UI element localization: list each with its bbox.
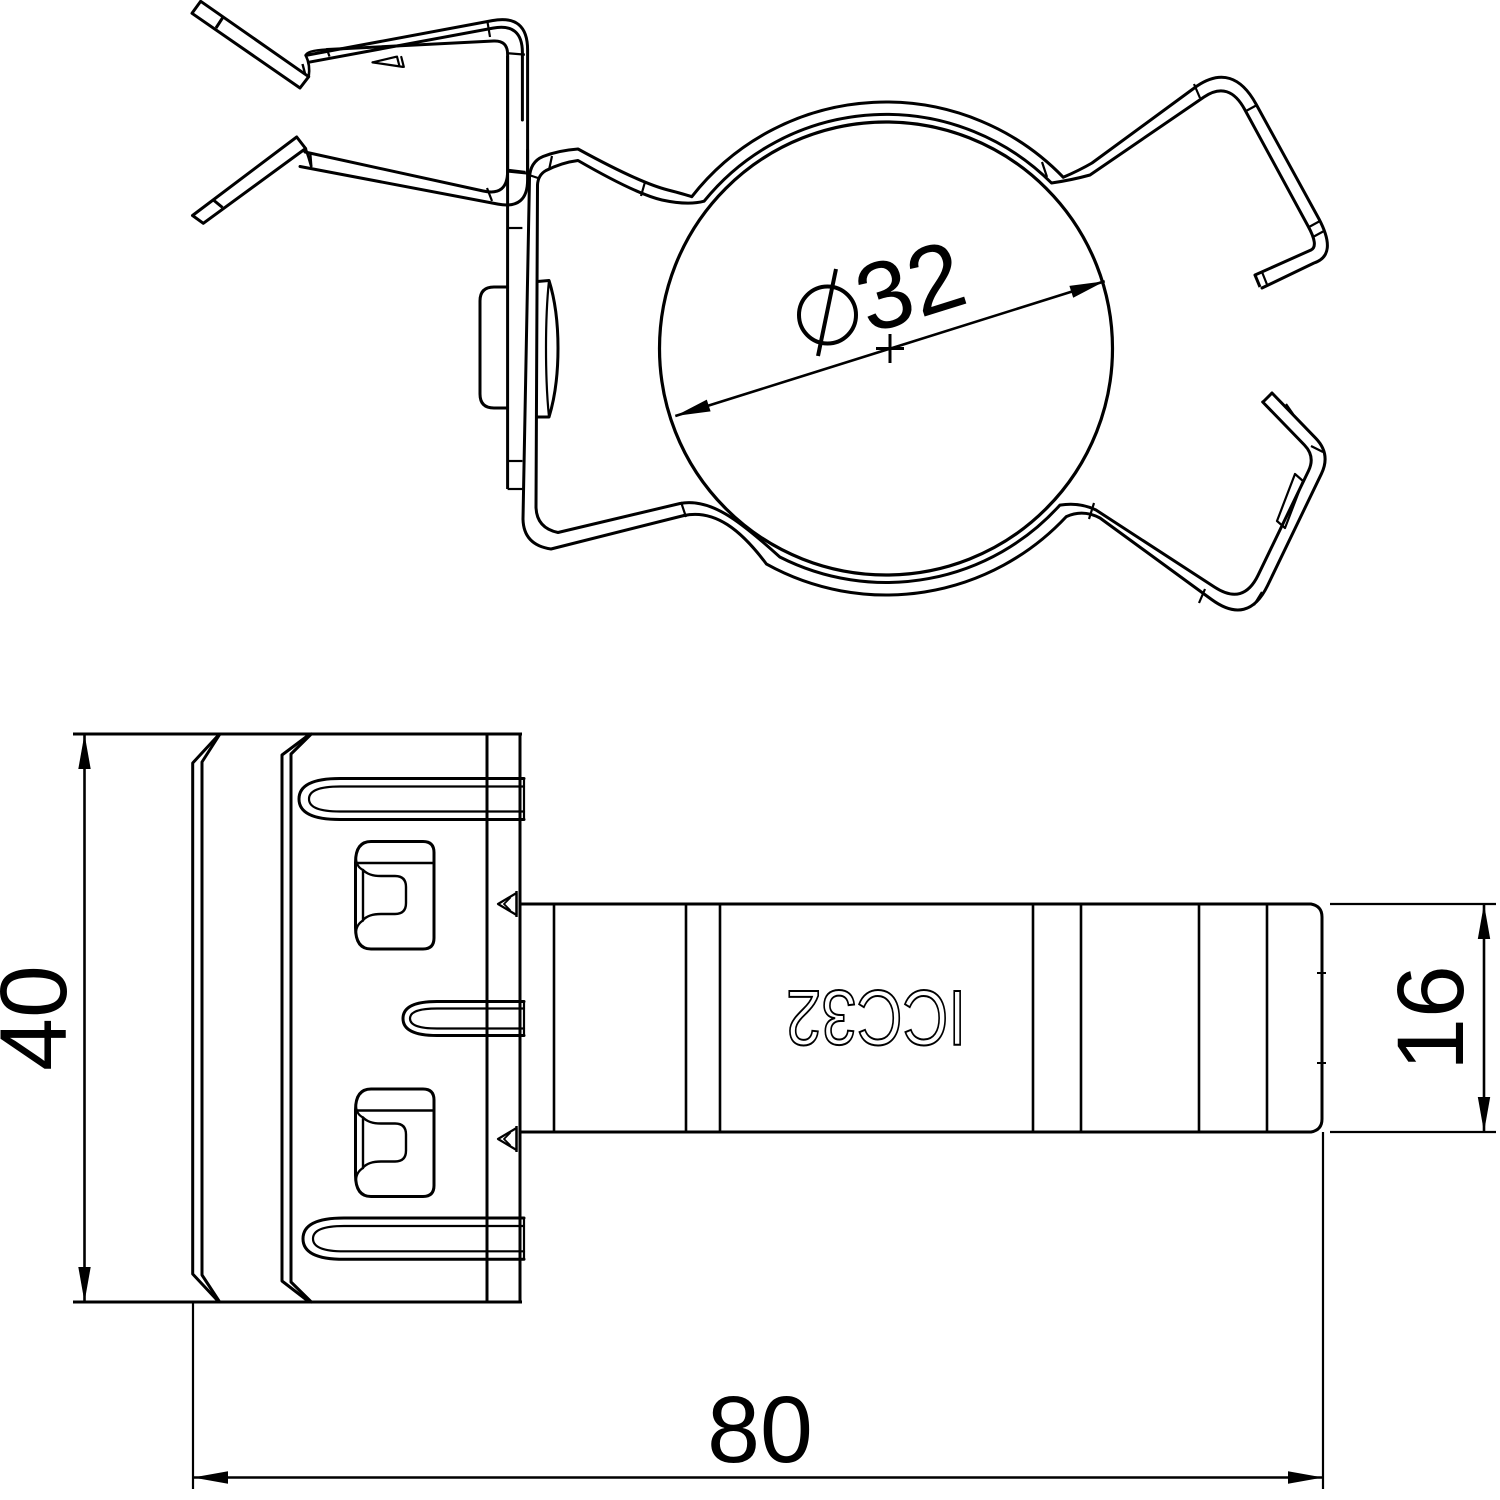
svg-text:80: 80	[707, 1377, 813, 1483]
svg-text:40: 40	[0, 965, 87, 1071]
svg-text:ICC32: ICC32	[786, 974, 966, 1062]
svg-text:16: 16	[1378, 965, 1484, 1071]
